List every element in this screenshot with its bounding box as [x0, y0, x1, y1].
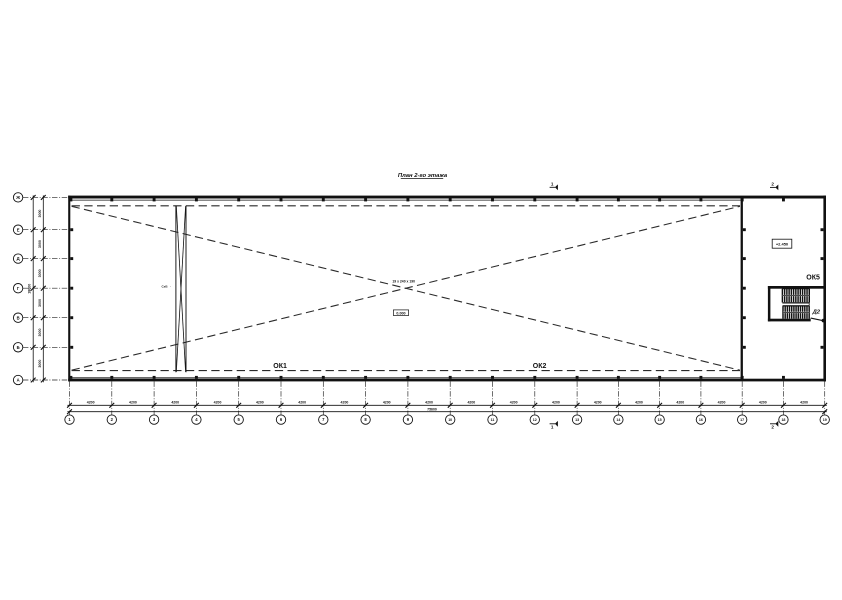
- svg-text:19 х 240 х 190: 19 х 240 х 190: [392, 279, 415, 283]
- svg-text:4200: 4200: [425, 400, 433, 404]
- svg-text:4200: 4200: [800, 400, 808, 404]
- svg-text:В: В: [17, 315, 20, 320]
- svg-text:4200: 4200: [298, 400, 306, 404]
- svg-text:19: 19: [823, 418, 827, 422]
- svg-text:4200: 4200: [759, 400, 767, 404]
- svg-text:3000: 3000: [38, 299, 42, 307]
- svg-text:СхВ: СхВ: [161, 284, 168, 288]
- svg-text:18: 18: [781, 418, 785, 422]
- svg-text:3000: 3000: [38, 210, 42, 218]
- svg-text:4200: 4200: [510, 400, 518, 404]
- svg-text:11: 11: [491, 418, 495, 422]
- svg-text:4200: 4200: [552, 400, 560, 404]
- svg-text:1: 1: [551, 424, 554, 429]
- svg-text:4200: 4200: [383, 400, 391, 404]
- svg-text:14: 14: [616, 418, 620, 422]
- svg-text:17: 17: [740, 418, 744, 422]
- svg-text:3000: 3000: [38, 240, 42, 248]
- svg-text:13: 13: [575, 418, 579, 422]
- svg-text:10: 10: [448, 418, 452, 422]
- svg-text:4200: 4200: [171, 400, 179, 404]
- svg-text:75600: 75600: [427, 407, 437, 411]
- svg-text:4200: 4200: [676, 400, 684, 404]
- svg-text:Е: Е: [17, 227, 20, 232]
- svg-text:4200: 4200: [87, 400, 95, 404]
- svg-text:Б: Б: [17, 345, 20, 350]
- svg-text:2: 2: [771, 182, 774, 187]
- svg-text:А: А: [17, 378, 20, 383]
- svg-text:2: 2: [771, 424, 774, 429]
- svg-text:0.000: 0.000: [396, 311, 405, 315]
- svg-text:12: 12: [533, 418, 537, 422]
- svg-text:ОК2: ОК2: [533, 363, 547, 370]
- svg-text:ОК5: ОК5: [806, 275, 820, 282]
- svg-text:3000: 3000: [38, 269, 42, 277]
- svg-text:3000: 3000: [38, 329, 42, 337]
- svg-text:4200: 4200: [467, 400, 475, 404]
- svg-text:Д: Д: [17, 256, 20, 261]
- svg-text:16: 16: [699, 418, 703, 422]
- svg-text:4200: 4200: [256, 400, 264, 404]
- svg-text:ОК1: ОК1: [273, 363, 287, 370]
- svg-text:План 2-го этажа: План 2-го этажа: [398, 173, 448, 179]
- svg-text:-: -: [170, 284, 171, 288]
- svg-text:4200: 4200: [214, 400, 222, 404]
- svg-text:+2.450: +2.450: [776, 242, 789, 247]
- svg-text:Д2: Д2: [812, 310, 821, 316]
- svg-text:1: 1: [551, 182, 554, 187]
- svg-text:15: 15: [658, 418, 662, 422]
- svg-text:4200: 4200: [718, 400, 726, 404]
- svg-text:18000: 18000: [28, 284, 32, 294]
- svg-text:3000: 3000: [38, 360, 42, 368]
- svg-text:4200: 4200: [129, 400, 137, 404]
- svg-text:4200: 4200: [635, 400, 643, 404]
- svg-text:Ж: Ж: [15, 195, 20, 200]
- svg-text:4200: 4200: [594, 400, 602, 404]
- svg-text:4200: 4200: [341, 400, 349, 404]
